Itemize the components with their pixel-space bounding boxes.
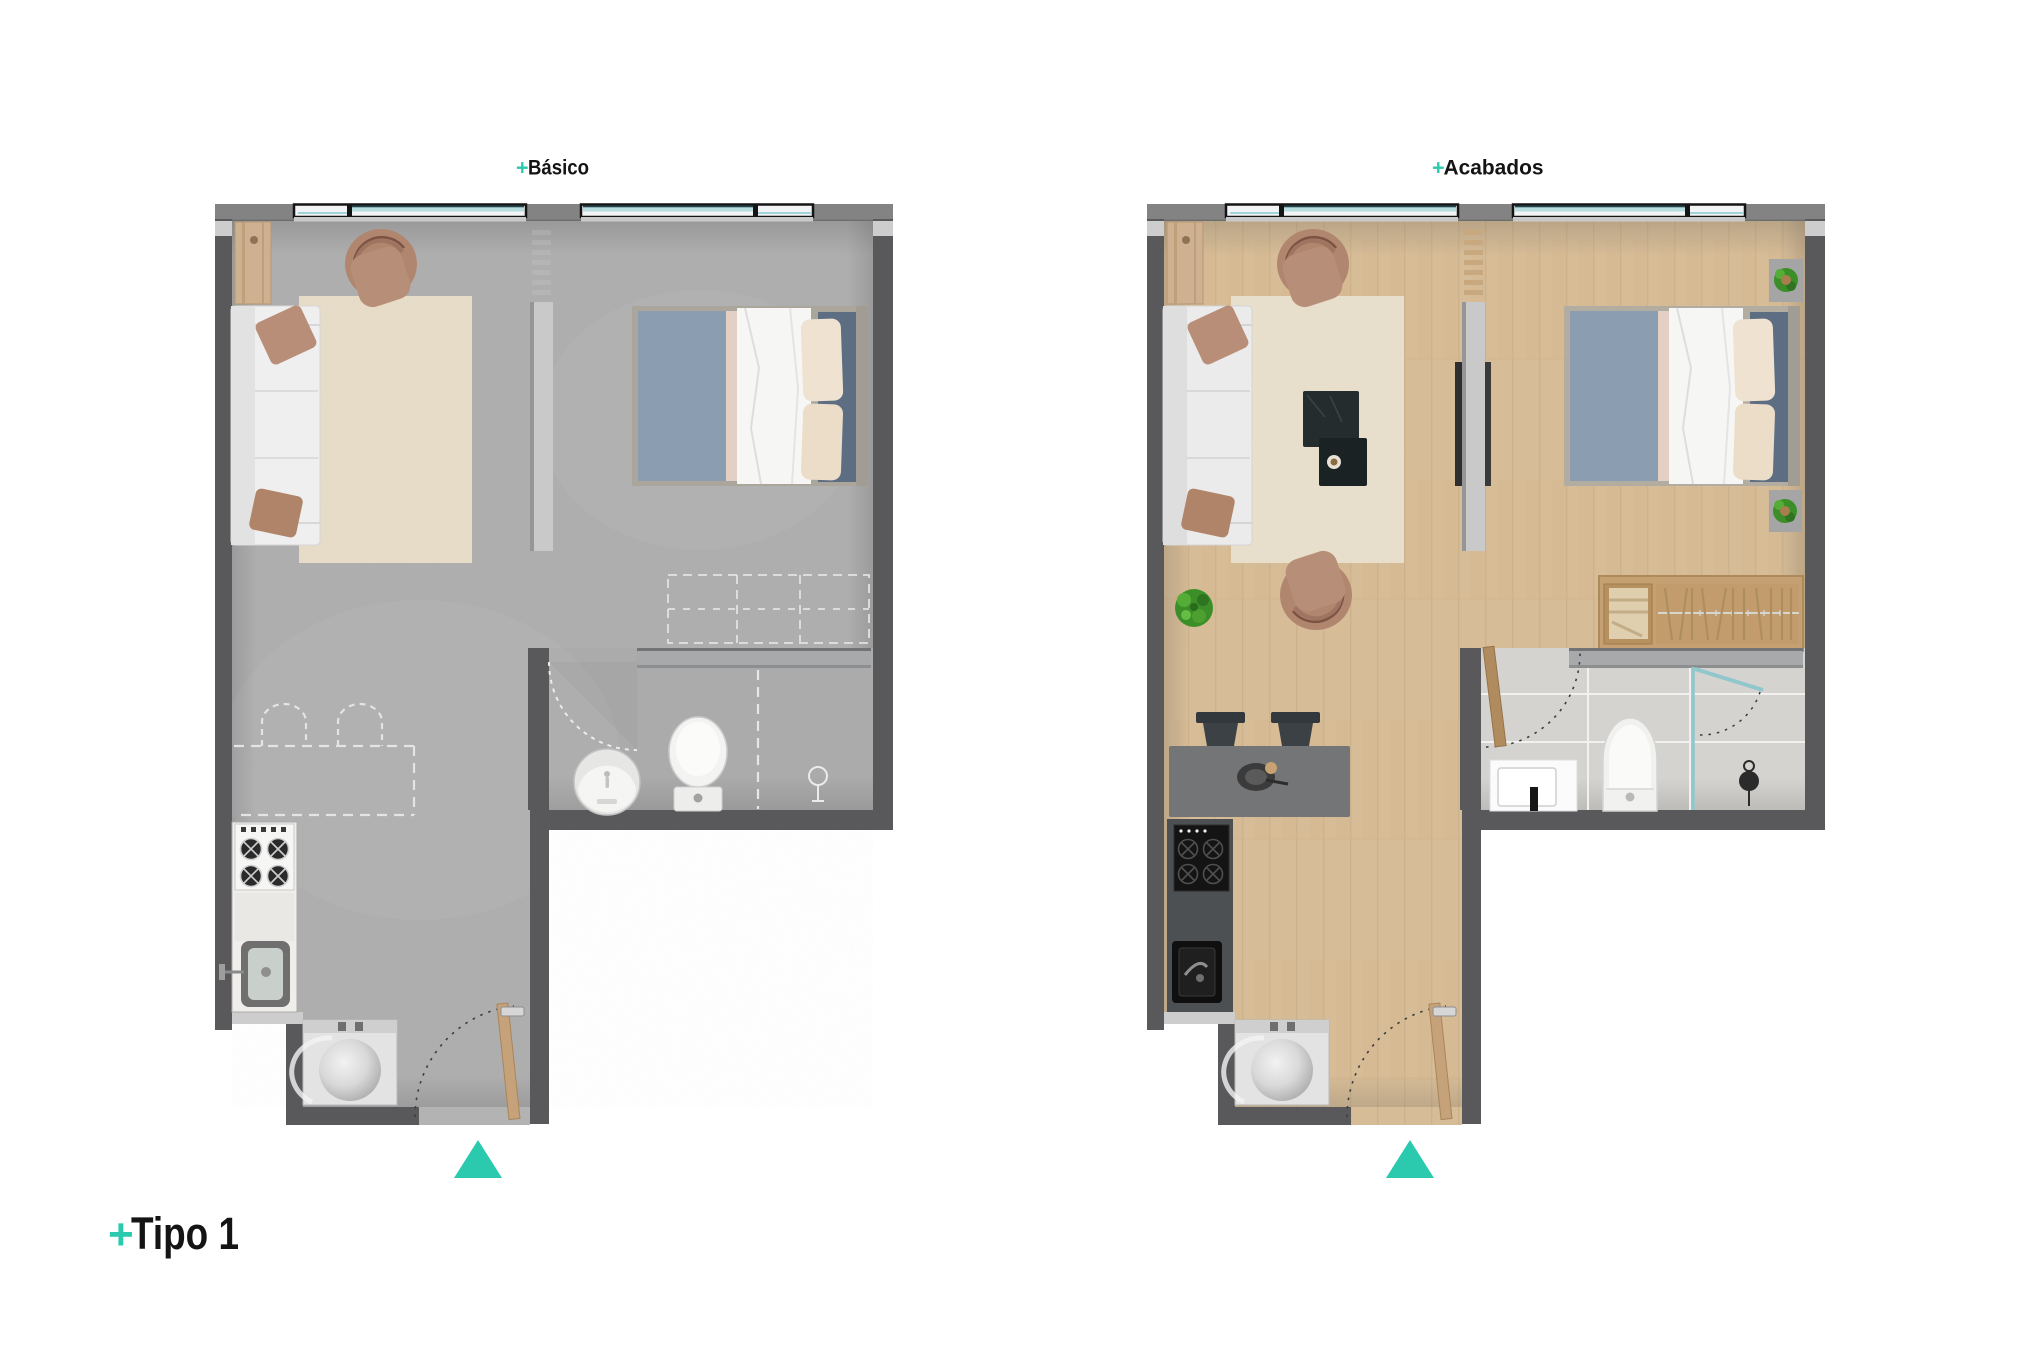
svg-text:Acabados: Acabados [1444,156,1544,180]
svg-text:+: + [108,1210,134,1259]
svg-text:+: + [516,156,529,180]
svg-text:Tipo 1: Tipo 1 [131,1208,239,1259]
svg-text:Básico: Básico [528,156,589,180]
